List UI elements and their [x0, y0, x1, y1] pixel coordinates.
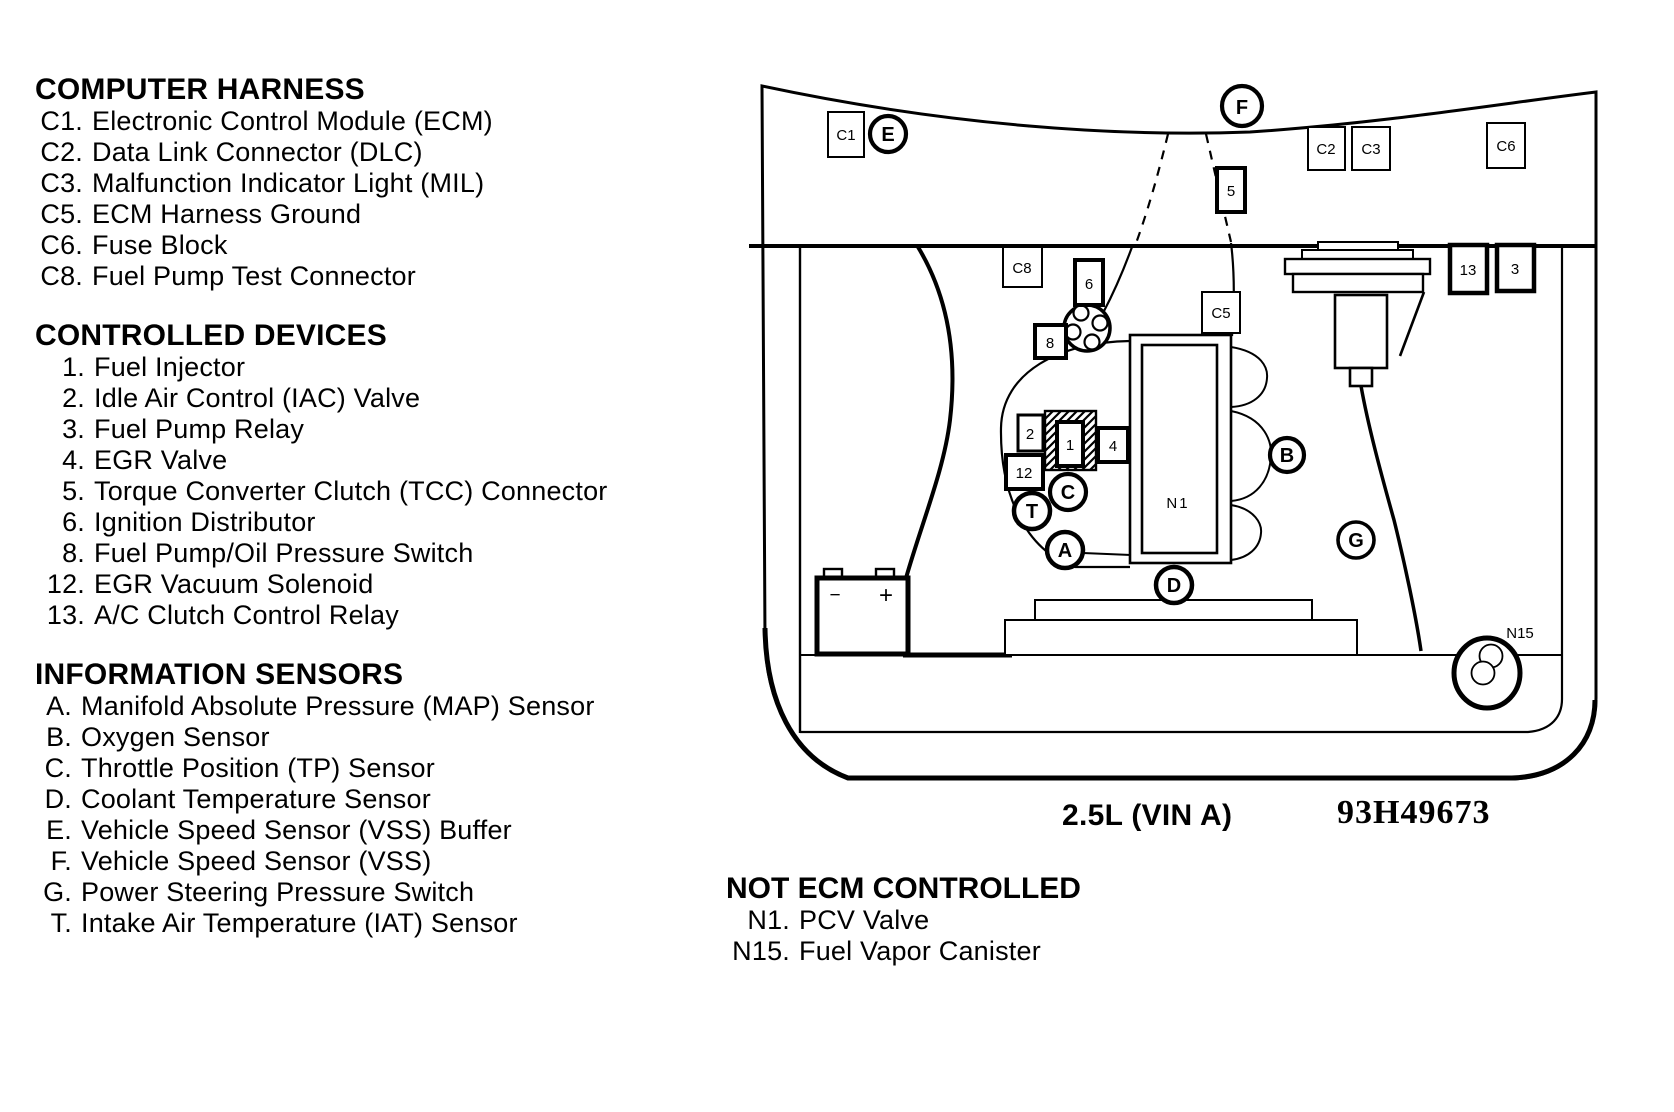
service-manual-page: { "legend": { "computer_harness": { "tit…	[0, 0, 1674, 1112]
callout-circle-a: A	[1047, 532, 1083, 568]
legend-item: N1.PCV Valve	[726, 905, 1081, 936]
callout-circle-c: C	[1050, 474, 1086, 510]
callout-box-8: 8	[1035, 325, 1066, 358]
legend-item: 5.Torque Converter Clutch (TCC) Connecto…	[35, 476, 695, 507]
funnel-dashed-left	[1135, 134, 1168, 246]
battery-minus: −	[829, 585, 840, 606]
svg-text:C1: C1	[836, 127, 855, 144]
svg-text:C2: C2	[1316, 141, 1335, 158]
svg-text:C: C	[1061, 482, 1075, 504]
legend-item: 12.EGR Vacuum Solenoid	[35, 569, 695, 600]
engine-compartment-diagram: N1 − + N15 C	[700, 60, 1600, 800]
svg-text:D: D	[1167, 575, 1181, 597]
callout-circle-b: B	[1270, 438, 1304, 472]
callout-circle-e: E	[870, 116, 906, 152]
legend-item: 8.Fuel Pump/Oil Pressure Switch	[35, 538, 695, 569]
svg-text:A: A	[1058, 540, 1072, 562]
legend-item: 2.Idle Air Control (IAC) Valve	[35, 383, 695, 414]
svg-text:C5: C5	[1211, 305, 1230, 322]
callout-box-c6: C6	[1487, 123, 1525, 168]
legend-item: N15.Fuel Vapor Canister	[726, 936, 1081, 967]
svg-text:1: 1	[1066, 437, 1074, 454]
battery-plus: +	[879, 582, 893, 609]
section-title: COMPUTER HARNESS	[35, 74, 695, 106]
legend-item: C.Throttle Position (TP) Sensor	[35, 753, 695, 784]
svg-text:13: 13	[1460, 262, 1477, 279]
legend-item: B.Oxygen Sensor	[35, 722, 695, 753]
callout-box-c1: C1	[828, 112, 864, 157]
callout-circle-g: G	[1338, 522, 1374, 558]
map-sensor-lead	[1083, 553, 1131, 555]
ignition-distributor	[1064, 305, 1110, 351]
svg-text:5: 5	[1227, 183, 1235, 200]
fuel-vapor-canister: N15	[1454, 625, 1534, 708]
svg-text:6: 6	[1085, 276, 1093, 293]
svg-text:2: 2	[1026, 426, 1034, 443]
legend-controlled-devices: CONTROLLED DEVICES 1.Fuel Injector 2.Idl…	[35, 320, 695, 631]
legend-item: G.Power Steering Pressure Switch	[35, 877, 695, 908]
callout-box-1: 1	[1057, 422, 1083, 466]
callout-box-3: 3	[1497, 245, 1534, 291]
legend-item: T.Intake Air Temperature (IAT) Sensor	[35, 908, 695, 939]
booster-cable	[1361, 386, 1421, 651]
callout-box-c3: C3	[1352, 127, 1390, 170]
legend-item: 4.EGR Valve	[35, 445, 695, 476]
legend-not-ecm-controlled: NOT ECM CONTROLLED N1.PCV Valve N15.Fuel…	[726, 872, 1081, 967]
engine-mount-lower	[1005, 620, 1357, 655]
callout-box-6: 6	[1075, 260, 1103, 305]
valve-cover: N1	[1130, 335, 1271, 563]
svg-text:E: E	[881, 124, 894, 146]
engine-displacement-label: 2.5L (VIN A)	[1062, 799, 1232, 833]
section-title: NOT ECM CONTROLLED	[726, 872, 1081, 905]
legend-information-sensors: INFORMATION SENSORS A.Manifold Absolute …	[35, 659, 695, 939]
svg-text:C6: C6	[1496, 138, 1515, 155]
callout-box-4: 4	[1098, 428, 1128, 462]
legend-item: C3.Malfunction Indicator Light (MIL)	[35, 168, 695, 199]
legend-item: 6.Ignition Distributor	[35, 507, 695, 538]
legend-item: 1.Fuel Injector	[35, 352, 695, 383]
legend-item: C2.Data Link Connector (DLC)	[35, 137, 695, 168]
svg-text:C3: C3	[1361, 141, 1380, 158]
legend-panel: COMPUTER HARNESS C1.Electronic Control M…	[35, 74, 695, 967]
callout-box-c8: C8	[1003, 247, 1042, 287]
svg-text:T: T	[1026, 501, 1038, 523]
funnel-solid-left	[1103, 247, 1132, 313]
legend-computer-harness: COMPUTER HARNESS C1.Electronic Control M…	[35, 74, 695, 292]
callout-box-13: 13	[1450, 245, 1487, 293]
svg-text:F: F	[1236, 97, 1248, 119]
legend-item: 3.Fuel Pump Relay	[35, 414, 695, 445]
svg-text:G: G	[1348, 530, 1364, 552]
legend-item: C5.ECM Harness Ground	[35, 199, 695, 230]
svg-text:B: B	[1280, 445, 1294, 467]
svg-text:4: 4	[1109, 438, 1117, 455]
callout-box-2: 2	[1018, 415, 1043, 451]
callout-box-5: 5	[1217, 168, 1245, 212]
legend-item: E.Vehicle Speed Sensor (VSS) Buffer	[35, 815, 695, 846]
legend-item: C6.Fuse Block	[35, 230, 695, 261]
fender-curve	[906, 247, 952, 578]
callout-circle-f: F	[1222, 86, 1262, 126]
legend-item: F.Vehicle Speed Sensor (VSS)	[35, 846, 695, 877]
callout-circle-d: D	[1156, 567, 1192, 603]
svg-text:C8: C8	[1012, 260, 1031, 277]
section-title: CONTROLLED DEVICES	[35, 320, 695, 352]
svg-text:12: 12	[1016, 465, 1033, 482]
callout-circle-t: T	[1014, 493, 1050, 529]
legend-item: C8.Fuel Pump Test Connector	[35, 261, 695, 292]
callout-box-c5: C5	[1202, 292, 1240, 333]
legend-item: D.Coolant Temperature Sensor	[35, 784, 695, 815]
legend-item: A.Manifold Absolute Pressure (MAP) Senso…	[35, 691, 695, 722]
callout-box-c2: C2	[1308, 127, 1345, 170]
pcv-valve-label: N1	[1166, 495, 1189, 512]
svg-text:8: 8	[1046, 335, 1054, 352]
canister-label: N15	[1506, 625, 1534, 642]
legend-item: C1.Electronic Control Module (ECM)	[35, 106, 695, 137]
section-title: INFORMATION SENSORS	[35, 659, 695, 691]
svg-text:3: 3	[1511, 261, 1519, 278]
callout-box-12: 12	[1006, 455, 1043, 489]
legend-item: 13.A/C Clutch Control Relay	[35, 600, 695, 631]
brake-booster	[1285, 242, 1430, 651]
battery: − +	[817, 569, 908, 654]
